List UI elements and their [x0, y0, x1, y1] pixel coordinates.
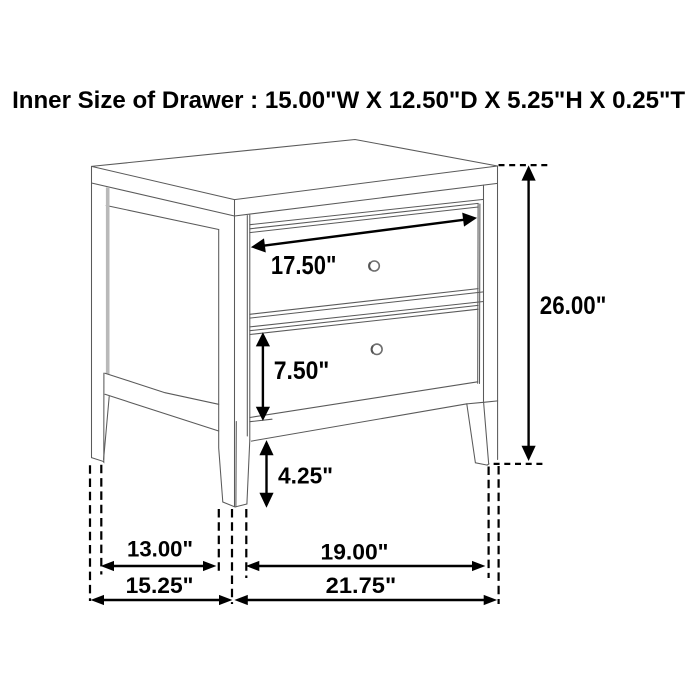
- svg-text:4.25": 4.25": [278, 462, 333, 488]
- svg-text:26.00": 26.00": [540, 292, 607, 320]
- svg-text:17.50": 17.50": [271, 250, 337, 280]
- svg-text:21.75": 21.75": [326, 573, 397, 598]
- svg-text:Inner Size of Drawer : 15.00"W: Inner Size of Drawer : 15.00"W X 12.50"D…: [12, 87, 685, 114]
- svg-text:7.50": 7.50": [274, 357, 330, 385]
- svg-text:13.00": 13.00": [127, 536, 193, 561]
- svg-text:15.25": 15.25": [126, 573, 194, 598]
- svg-text:19.00": 19.00": [321, 539, 389, 564]
